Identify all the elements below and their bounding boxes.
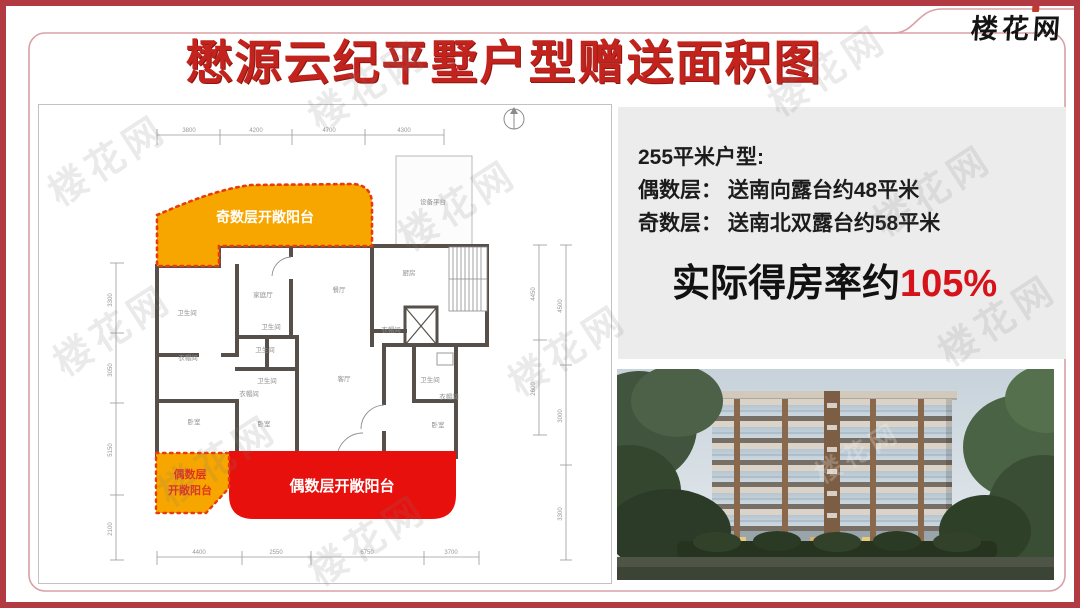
floor-plan-drawing: 3800 4200 4700 4300 3300 3050 5150 2100 … bbox=[39, 105, 611, 583]
efficiency-value: 105% bbox=[900, 263, 997, 305]
site-logo-text: 楼花网 bbox=[970, 14, 1065, 45]
svg-text:6750: 6750 bbox=[360, 550, 374, 556]
svg-text:3700: 3700 bbox=[444, 550, 458, 556]
door-arcs bbox=[272, 257, 384, 457]
svg-text:4450: 4450 bbox=[531, 287, 537, 301]
even-floor-balcony-small-shape bbox=[156, 453, 229, 513]
odd-balcony-label: 奇数层开敞阳台 bbox=[216, 209, 314, 225]
svg-text:3800: 3800 bbox=[182, 128, 196, 134]
svg-text:卫生间: 卫生间 bbox=[261, 322, 281, 331]
svg-text:衣帽间: 衣帽间 bbox=[381, 325, 401, 334]
svg-text:2100: 2100 bbox=[108, 522, 114, 536]
svg-text:3050: 3050 bbox=[108, 363, 114, 377]
site-logo: 楼花网 bbox=[970, 7, 1066, 46]
svg-text:卫生间: 卫生间 bbox=[255, 345, 275, 354]
elevator bbox=[405, 307, 437, 345]
even-balcony-small-label-1: 偶数层 bbox=[174, 467, 207, 481]
promo-graphic: 懋源云纪平墅户型赠送面积图 楼花网 bbox=[0, 0, 1080, 608]
odd-floor-line: 奇数层： 送南北双露台约58平米 bbox=[638, 207, 1066, 240]
efficiency-prefix: 实际得房率约 bbox=[672, 263, 900, 305]
svg-text:卫生间: 卫生间 bbox=[177, 308, 197, 317]
svg-text:衣帽间: 衣帽间 bbox=[239, 389, 259, 398]
svg-text:2550: 2550 bbox=[269, 550, 283, 556]
svg-text:卫生间: 卫生间 bbox=[420, 375, 440, 384]
building-rendering-photo: 楼花网 bbox=[617, 369, 1054, 580]
svg-text:设备平台: 设备平台 bbox=[420, 197, 446, 206]
logo-seal-icon bbox=[1032, 5, 1039, 12]
svg-text:4200: 4200 bbox=[249, 128, 263, 134]
svg-text:卫生间: 卫生间 bbox=[257, 376, 277, 385]
svg-text:客厅: 客厅 bbox=[338, 374, 352, 383]
svg-text:衣帽间: 衣帽间 bbox=[178, 353, 198, 362]
even-balcony-small-label-2: 开敞阳台 bbox=[168, 483, 212, 497]
svg-text:家庭厅: 家庭厅 bbox=[253, 290, 273, 299]
foreground-grass bbox=[617, 567, 1054, 580]
floor-plan-panel: 3800 4200 4700 4300 3300 3050 5150 2100 … bbox=[38, 104, 612, 584]
svg-text:卧室: 卧室 bbox=[188, 417, 202, 426]
north-compass-icon bbox=[504, 107, 524, 129]
svg-text:3300: 3300 bbox=[558, 507, 564, 521]
svg-text:4400: 4400 bbox=[192, 550, 206, 556]
stairs bbox=[449, 247, 487, 311]
svg-text:衣帽间: 衣帽间 bbox=[439, 392, 459, 401]
svg-text:4300: 4300 bbox=[397, 128, 411, 134]
odd-floor-balcony-shape bbox=[157, 184, 372, 266]
even-balcony-label: 偶数层开敞阳台 bbox=[289, 477, 394, 495]
svg-text:卧室: 卧室 bbox=[258, 419, 272, 428]
svg-text:5150: 5150 bbox=[108, 443, 114, 457]
svg-text:3300: 3300 bbox=[108, 293, 114, 307]
svg-text:餐厅: 餐厅 bbox=[333, 285, 347, 294]
page-title: 懋源云纪平墅户型赠送面积图 bbox=[118, 24, 890, 93]
even-floor-line: 偶数层： 送南向露台约48平米 bbox=[638, 174, 1066, 207]
svg-text:3000: 3000 bbox=[558, 409, 564, 423]
svg-text:2600: 2600 bbox=[531, 382, 537, 396]
hedge bbox=[677, 531, 997, 559]
unit-size-line: 255平米户型: bbox=[638, 141, 1066, 174]
svg-text:卧室: 卧室 bbox=[432, 420, 446, 429]
svg-text:厨房: 厨房 bbox=[403, 268, 416, 277]
efficiency-highlight: 实际得房率约105% bbox=[638, 252, 1066, 307]
svg-text:4500: 4500 bbox=[558, 299, 564, 313]
svg-text:4700: 4700 bbox=[322, 128, 336, 134]
info-panel: 255平米户型: 偶数层： 送南向露台约48平米 奇数层： 送南北双露台约58平… bbox=[618, 107, 1066, 359]
